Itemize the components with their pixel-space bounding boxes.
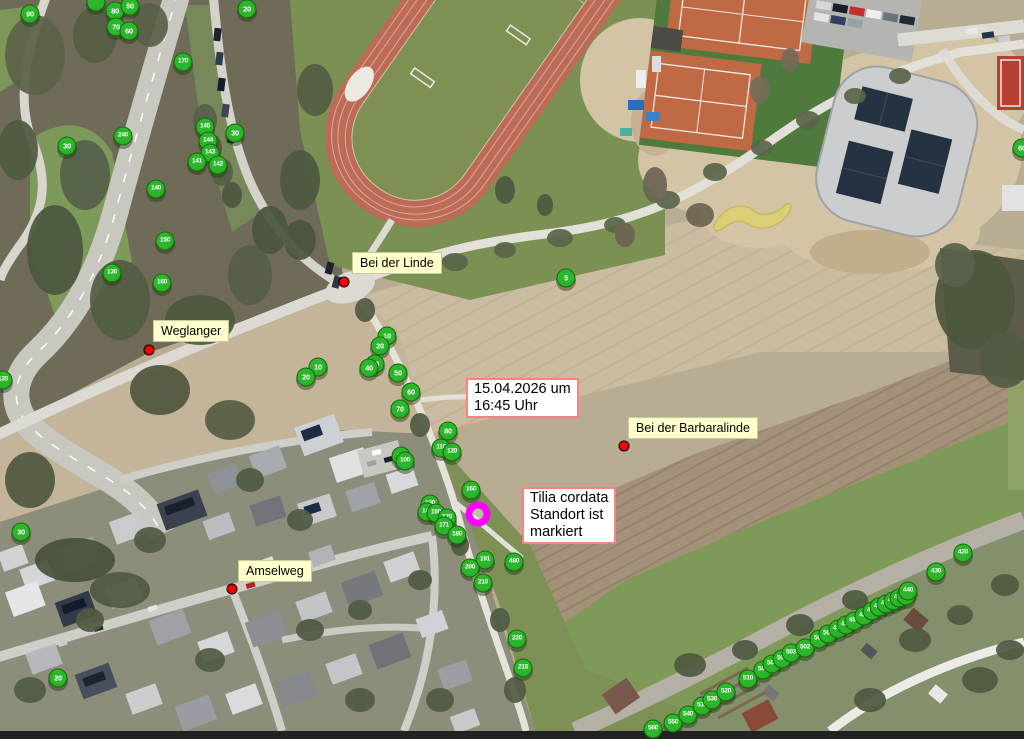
tree-marker[interactable]: 520 — [717, 683, 736, 702]
selected-tree-highlight[interactable] — [466, 502, 491, 527]
tree-marker[interactable]: 140 — [147, 180, 166, 199]
tree-marker[interactable]: 30 — [58, 137, 77, 156]
poi-label: Weglanger — [153, 320, 229, 342]
tree-marker[interactable]: 560 — [644, 720, 663, 739]
map-note-line: 16:45 Uhr — [474, 398, 571, 415]
tree-marker[interactable]: 100 — [396, 452, 415, 471]
tree-marker[interactable]: 30 — [12, 523, 31, 542]
tree-marker[interactable]: 240 — [114, 127, 133, 146]
tree-marker[interactable]: 50 — [121, 0, 140, 16]
tree-marker[interactable]: 142 — [209, 156, 228, 175]
map-note-line: 15.04.2026 um — [474, 381, 571, 398]
tree-marker[interactable]: 20 — [49, 669, 68, 688]
map-canvas[interactable]: 9080507060201702403014514414314114230140… — [0, 0, 1024, 731]
poi-dot[interactable] — [227, 584, 238, 595]
tree-marker[interactable]: 60 — [120, 22, 139, 41]
tree-marker[interactable]: 160 — [462, 481, 481, 500]
tree-marker[interactable]: 90 — [21, 5, 40, 24]
tree-marker[interactable]: 20 — [371, 337, 390, 356]
tree-marker[interactable]: 120 — [443, 443, 462, 462]
tree-marker[interactable]: 60 — [1013, 139, 1024, 158]
tree-marker[interactable]: 420 — [954, 544, 973, 563]
tree-marker[interactable]: 160 — [153, 274, 172, 293]
tree-marker[interactable]: 30 — [226, 124, 245, 143]
poi-label: Bei der Barbaralinde — [628, 417, 758, 439]
poi-label: Bei der Linde — [352, 252, 442, 274]
tree-marker[interactable]: 440 — [899, 582, 918, 601]
tree-marker[interactable]: 150 — [156, 232, 175, 251]
poi-label: Amselweg — [238, 560, 312, 582]
tree-marker[interactable]: 480 — [505, 553, 524, 572]
poi-dot[interactable] — [144, 345, 155, 356]
tree-marker[interactable]: 120 — [0, 371, 13, 390]
poi-dot[interactable] — [619, 441, 630, 452]
map-note: 15.04.2026 um16:45 Uhr — [466, 378, 579, 418]
tree-marker[interactable]: 60 — [402, 383, 421, 402]
marker-layer: 9080507060201702403014514414314114230140… — [0, 0, 1024, 731]
map-note-line: Tilia cordata — [530, 490, 608, 507]
map-note-line: Standort ist — [530, 507, 608, 524]
tree-marker[interactable]: 5 — [557, 269, 576, 288]
tree-marker[interactable]: 20 — [297, 368, 316, 387]
poi-dot[interactable] — [339, 277, 350, 288]
tree-marker[interactable]: 430 — [927, 563, 946, 582]
tree-marker[interactable]: 40 — [360, 359, 379, 378]
tree-marker[interactable]: 180 — [448, 526, 467, 545]
tree-marker[interactable]: 70 — [391, 400, 410, 419]
tree-marker[interactable]: 20 — [238, 0, 257, 19]
map-note-line: markiert — [530, 524, 608, 541]
map-note: Tilia cordataStandort istmarkiert — [522, 487, 616, 544]
tree-marker[interactable]: 220 — [508, 630, 527, 649]
tree-marker[interactable]: 170 — [174, 53, 193, 72]
tree-marker[interactable]: 130 — [103, 264, 122, 283]
tree-marker[interactable]: 50 — [389, 364, 408, 383]
tree-marker[interactable]: 141 — [188, 153, 207, 172]
tree-marker[interactable] — [87, 0, 106, 12]
tree-marker[interactable]: 215 — [514, 659, 533, 678]
tree-marker[interactable]: 210 — [474, 574, 493, 593]
